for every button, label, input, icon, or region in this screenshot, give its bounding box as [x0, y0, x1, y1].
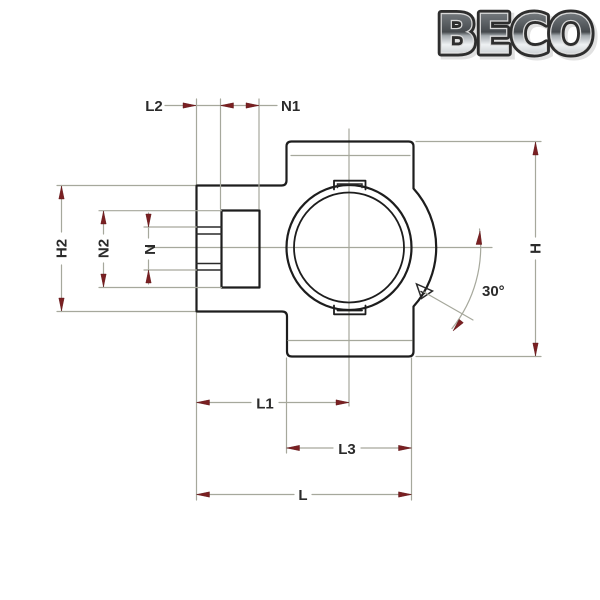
dimension-l: L — [197, 487, 412, 504]
arrow-l-right — [399, 492, 412, 497]
dim-label-n: N — [142, 244, 159, 255]
dim-label-l: L — [298, 487, 307, 504]
centerlines — [148, 129, 492, 406]
beco-logo-inline: BECO — [436, 3, 592, 66]
arrow-n1-right — [246, 103, 259, 108]
arrow-l1-left — [197, 400, 210, 405]
arrow-l3-right — [399, 445, 412, 450]
guide-slot — [222, 211, 260, 288]
arrow-l3-left — [287, 445, 300, 450]
arrow-h-top — [533, 142, 538, 155]
dim-label-n1: N1 — [281, 98, 300, 115]
dim-label-h: H — [528, 243, 545, 254]
arrow-n2-top — [101, 211, 106, 224]
dim-label-n2: N2 — [96, 239, 113, 258]
arrow-h2-top — [59, 186, 64, 199]
take-up-housing-drawing: BECO BECO BECO BECO — [0, 0, 600, 600]
angle-leader-line — [424, 292, 473, 320]
arrow-l2-n1-shared — [221, 103, 234, 108]
beco-logo: BECO BECO BECO BECO — [436, 3, 595, 69]
dim-label-h2: H2 — [54, 239, 71, 258]
arrow-l-left — [197, 492, 210, 497]
dim-label-l2: L2 — [145, 98, 163, 115]
arrow-angle-top — [476, 231, 482, 245]
technical-drawing-page: BECO BECO BECO BECO — [0, 0, 600, 600]
arrow-h-bottom — [533, 343, 538, 356]
dimension-top-l2-n1: L2 N1 — [145, 98, 300, 209]
arrow-n2-bottom — [101, 274, 106, 287]
dimension-n: N — [142, 213, 197, 284]
bottom-tab — [334, 306, 366, 315]
dim-label-l1: L1 — [256, 396, 274, 413]
arrow-n-bottom — [146, 270, 151, 283]
dim-label-angle: 30° — [482, 283, 505, 300]
arrow-h2-bottom — [59, 298, 64, 311]
threaded-hole — [197, 227, 222, 270]
housing-body — [197, 142, 437, 357]
dim-label-l3: L3 — [338, 441, 356, 458]
dimension-h2: H2 — [54, 186, 196, 312]
arrow-n-top — [146, 214, 151, 227]
body-outline — [197, 142, 437, 357]
arrow-l2-left — [183, 103, 196, 108]
arrow-l1-right — [336, 400, 349, 405]
